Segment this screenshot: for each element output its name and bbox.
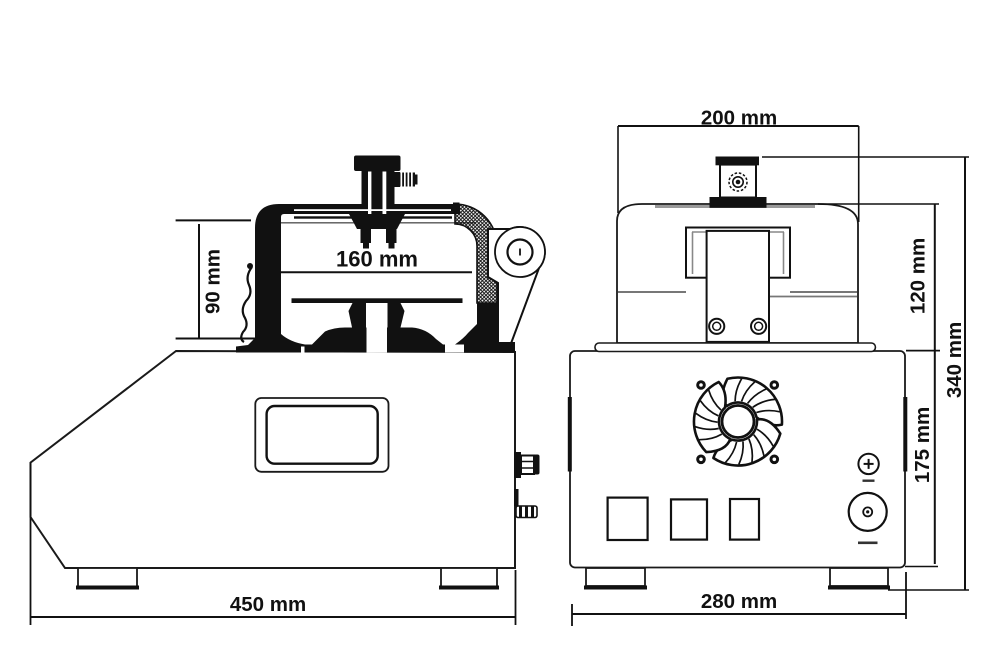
svg-text:160 mm: 160 mm [336,247,418,272]
svg-text:175 mm: 175 mm [911,407,934,483]
svg-text:200 mm: 200 mm [701,107,777,130]
svg-text:120 mm: 120 mm [907,238,930,314]
svg-text:280 mm: 280 mm [701,590,777,613]
svg-text:450 mm: 450 mm [230,593,306,616]
svg-text:340 mm: 340 mm [943,322,966,398]
svg-text:90 mm: 90 mm [202,249,225,314]
